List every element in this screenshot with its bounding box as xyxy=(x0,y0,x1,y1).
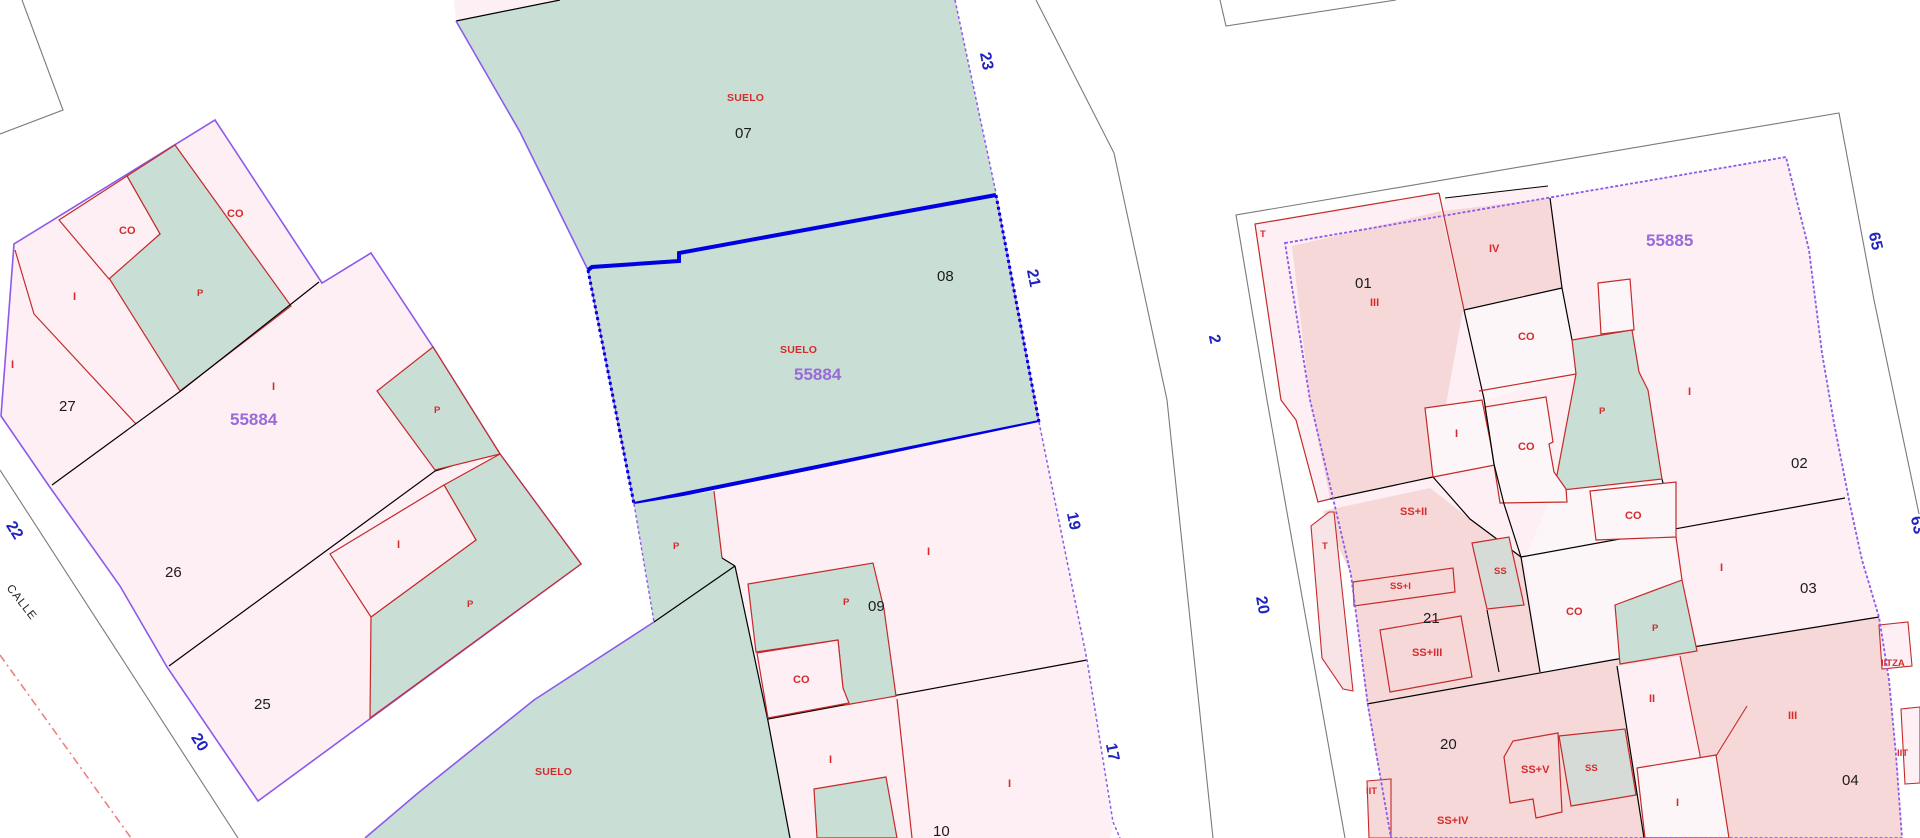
svg-text:17: 17 xyxy=(1102,742,1122,763)
svg-text:SS+V: SS+V xyxy=(1521,764,1550,776)
svg-text:27: 27 xyxy=(59,398,76,415)
svg-text:I: I xyxy=(1008,778,1011,790)
svg-text:T: T xyxy=(1322,541,1328,552)
svg-text:02: 02 xyxy=(1791,455,1808,472)
svg-text:CO: CO xyxy=(793,674,810,686)
svg-text:SUELO: SUELO xyxy=(780,344,817,356)
svg-text:SS+I: SS+I xyxy=(1390,581,1411,592)
svg-text:55885: 55885 xyxy=(1646,231,1693,250)
svg-text:I: I xyxy=(1676,797,1679,809)
svg-text:I: I xyxy=(829,754,832,766)
svg-text:I: I xyxy=(1688,386,1691,398)
svg-text:23: 23 xyxy=(976,51,996,72)
svg-text:21: 21 xyxy=(1423,610,1440,627)
svg-text:I: I xyxy=(397,539,400,551)
svg-text:P: P xyxy=(1599,406,1606,417)
svg-text:P: P xyxy=(434,405,441,416)
svg-text:T: T xyxy=(1260,229,1266,240)
svg-text:I: I xyxy=(272,381,275,393)
svg-text:SS: SS xyxy=(1585,763,1598,774)
svg-text:I: I xyxy=(73,291,76,303)
svg-text:SUELO: SUELO xyxy=(535,766,572,778)
svg-text:CO: CO xyxy=(1625,510,1642,522)
svg-text:SS+IV: SS+IV xyxy=(1437,815,1469,827)
svg-text:IITZA: IITZA xyxy=(1881,658,1905,669)
svg-text:SS+III: SS+III xyxy=(1412,647,1442,659)
svg-text:P: P xyxy=(467,599,474,610)
svg-text:III: III xyxy=(1370,297,1379,309)
svg-text:CO: CO xyxy=(227,208,244,220)
svg-text:55884: 55884 xyxy=(794,365,842,384)
svg-text:P: P xyxy=(843,597,850,608)
svg-text:SUELO: SUELO xyxy=(727,92,764,104)
svg-text:CO: CO xyxy=(1518,441,1535,453)
svg-text:25: 25 xyxy=(254,696,271,713)
svg-text:03: 03 xyxy=(1800,580,1817,597)
svg-text:I: I xyxy=(927,546,930,558)
svg-text:20: 20 xyxy=(1252,595,1272,616)
svg-text:I: I xyxy=(1455,428,1458,440)
svg-text:P: P xyxy=(197,288,204,299)
svg-text:SS+II: SS+II xyxy=(1400,506,1427,518)
svg-text:III: III xyxy=(1788,710,1797,722)
svg-text:CO: CO xyxy=(119,225,136,237)
svg-text:IIT: IIT xyxy=(1366,786,1377,797)
svg-text:IIT: IIT xyxy=(1897,748,1908,759)
svg-text:20: 20 xyxy=(1440,736,1457,753)
svg-text:SS: SS xyxy=(1494,566,1507,577)
svg-text:I: I xyxy=(11,359,14,371)
svg-text:19: 19 xyxy=(1063,511,1083,532)
svg-text:CO: CO xyxy=(1566,606,1583,618)
svg-text:09: 09 xyxy=(868,598,885,615)
svg-text:04: 04 xyxy=(1842,772,1859,789)
svg-text:26: 26 xyxy=(165,564,182,581)
svg-text:IV: IV xyxy=(1489,243,1500,255)
svg-text:P: P xyxy=(673,541,680,552)
svg-text:CO: CO xyxy=(1518,331,1535,343)
svg-text:01: 01 xyxy=(1355,275,1372,292)
svg-text:10: 10 xyxy=(933,823,950,838)
svg-text:21: 21 xyxy=(1023,268,1043,289)
svg-text:I: I xyxy=(1720,562,1723,574)
svg-text:08: 08 xyxy=(937,268,954,285)
svg-text:P: P xyxy=(1652,623,1659,634)
svg-text:II: II xyxy=(1649,693,1655,705)
svg-text:55884: 55884 xyxy=(230,410,278,429)
svg-text:07: 07 xyxy=(735,125,752,142)
